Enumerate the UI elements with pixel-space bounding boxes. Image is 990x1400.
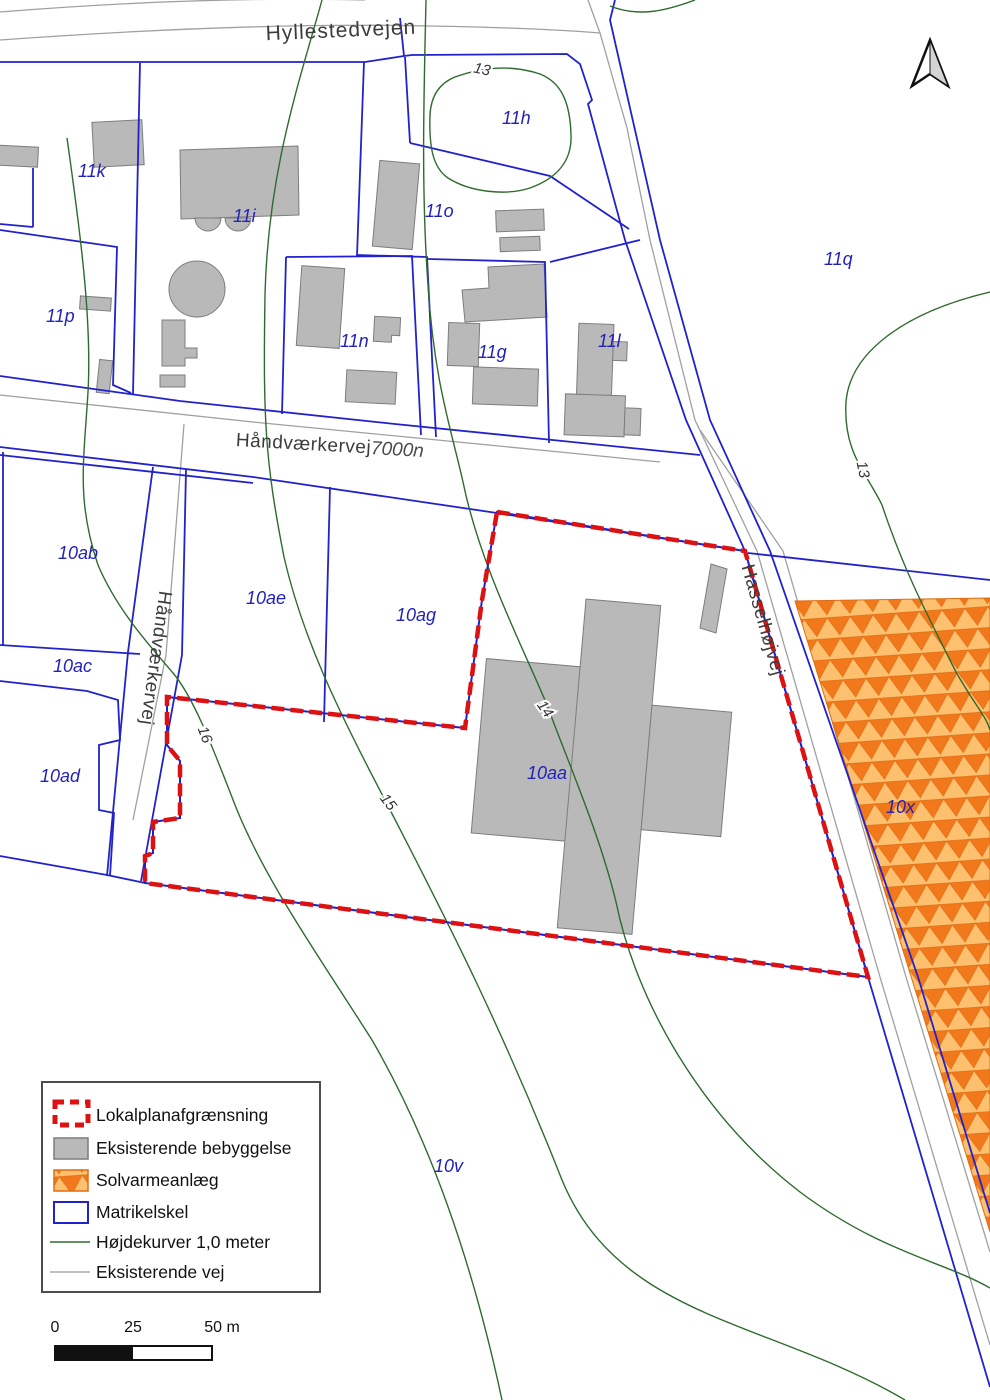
building bbox=[472, 367, 538, 406]
legend-box: Lokalplanafgrænsning Eksisterende bebygg… bbox=[42, 1082, 320, 1292]
parcel-boundary bbox=[0, 168, 33, 227]
matrikel-swatch bbox=[54, 1202, 88, 1223]
building bbox=[160, 375, 185, 387]
building bbox=[500, 236, 540, 251]
plan-boundary-swatch bbox=[55, 1102, 88, 1125]
scale-tick-label: 25 bbox=[124, 1319, 142, 1336]
parcel-label: 10aa bbox=[527, 763, 567, 783]
legend-item-label: Matrikelskel bbox=[96, 1202, 188, 1222]
building bbox=[496, 209, 545, 232]
building bbox=[162, 320, 197, 366]
parcel-label: 10ae bbox=[246, 588, 286, 608]
map-canvas: 11k 11i 11o 11h 11q 11p 11n 11g 11l 10ab… bbox=[0, 0, 990, 1400]
building bbox=[564, 394, 625, 437]
building bbox=[557, 599, 660, 934]
contour-label: 16 bbox=[194, 724, 216, 746]
building bbox=[96, 359, 112, 393]
building bbox=[447, 322, 479, 366]
scale-tick-label: 0 bbox=[51, 1319, 60, 1336]
scale-tick-label: 50 m bbox=[204, 1319, 240, 1336]
parcel-label: 11l bbox=[598, 331, 622, 351]
building-swatch bbox=[54, 1138, 88, 1159]
parcel-label: 10ac bbox=[53, 656, 92, 676]
solar-swatch bbox=[54, 1170, 88, 1191]
legend-item-label: Eksisterende vej bbox=[96, 1262, 224, 1282]
road-label-hyllestedvejen: Hyllestedvejen bbox=[265, 16, 416, 46]
road-label-haandvaerkervej: Håndværkervej bbox=[235, 430, 371, 459]
building-tank bbox=[195, 218, 221, 231]
parcel-boundary bbox=[550, 240, 640, 262]
parcel-label: 10ab bbox=[58, 543, 98, 563]
contour-label: 15 bbox=[376, 790, 400, 814]
parcel-boundary bbox=[0, 856, 145, 883]
lokalplan-map-page: 11k 11i 11o 11h 11q 11p 11n 11g 11l 10ab… bbox=[0, 0, 990, 1400]
parcel-label: 11i bbox=[233, 206, 257, 226]
parcel-label: 10v bbox=[434, 1156, 464, 1176]
parcel-label: 11o bbox=[425, 201, 454, 221]
parcel-label: 11n bbox=[340, 331, 369, 351]
building bbox=[80, 296, 112, 311]
building-10aa bbox=[464, 591, 741, 941]
solar-plant-area bbox=[795, 598, 990, 1232]
building bbox=[0, 145, 38, 167]
road-label-haandvaerkervej-nr: 7000n bbox=[370, 438, 424, 462]
parcel-boundary bbox=[133, 63, 140, 394]
building bbox=[373, 316, 400, 342]
building-tank bbox=[169, 261, 225, 317]
parcel-label: 11k bbox=[78, 161, 107, 181]
road-hyllestedvejen-north-casing bbox=[0, 0, 365, 12]
building bbox=[372, 160, 419, 249]
contour-label: 13 bbox=[472, 59, 492, 79]
parcel-label: 10x bbox=[886, 797, 916, 817]
building bbox=[462, 264, 547, 322]
legend-item-label: Højdekurver 1,0 meter bbox=[96, 1232, 270, 1252]
north-arrow-shade bbox=[930, 40, 948, 86]
building bbox=[345, 370, 397, 405]
parcel-label: 11h bbox=[502, 108, 531, 128]
legend-item-label: Solvarmeanlæg bbox=[96, 1170, 219, 1190]
scale-bar-filled-half bbox=[55, 1346, 133, 1360]
contour-label: 13 bbox=[853, 460, 873, 480]
parcel-label: 10ad bbox=[40, 766, 81, 786]
parcel-boundary bbox=[357, 62, 364, 256]
building bbox=[296, 266, 344, 349]
contour-line-13-loop bbox=[430, 68, 571, 192]
parcel-label: 10ag bbox=[396, 605, 436, 625]
north-arrow-icon bbox=[912, 40, 948, 86]
parcel-boundary bbox=[748, 553, 990, 580]
legend-item-label: Eksisterende bebyggelse bbox=[96, 1138, 292, 1158]
scale-bar: 0 25 50 m bbox=[51, 1319, 240, 1360]
parcel-label: 11g bbox=[478, 342, 507, 362]
building bbox=[624, 408, 641, 436]
contour-line-junction bbox=[610, 0, 695, 12]
parcel-label: 11p bbox=[46, 306, 75, 326]
parcel-label: 11q bbox=[824, 249, 853, 269]
parcel-boundary bbox=[0, 455, 253, 483]
parcel-boundary bbox=[405, 57, 410, 143]
road-label-haandvaerkervej-syd: Håndværkervej bbox=[136, 590, 176, 727]
legend-item-label: Lokalplanafgrænsning bbox=[96, 1105, 268, 1125]
building bbox=[700, 564, 727, 633]
building bbox=[641, 705, 732, 836]
parcel-boundary bbox=[357, 255, 436, 437]
